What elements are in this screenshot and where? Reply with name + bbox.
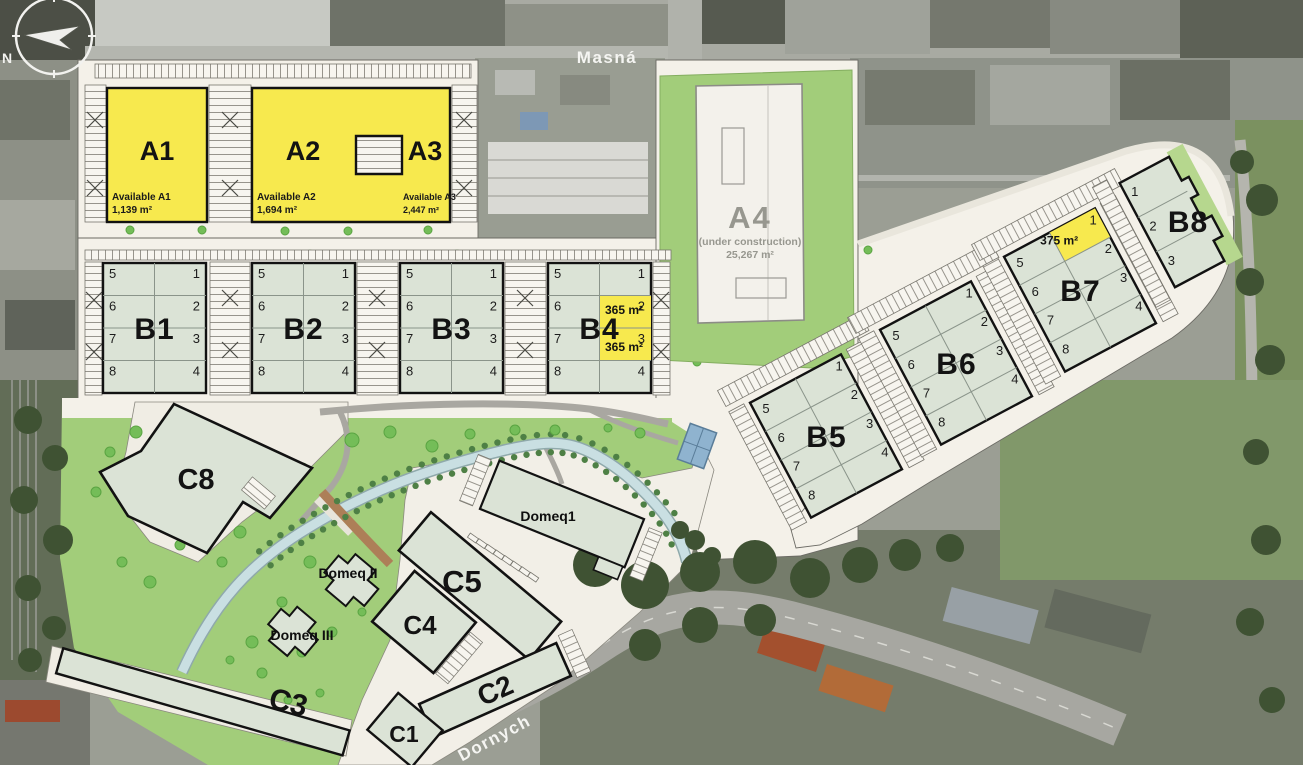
total-area: 25,267 m² (726, 249, 774, 261)
unit-number: 1 (1089, 212, 1096, 227)
unit-number: 8 (109, 364, 116, 379)
unit-number: 5 (406, 266, 413, 281)
building-b4[interactable]: 15263748B4365 m²365 m² (548, 263, 651, 393)
unit-number: 2 (490, 299, 497, 314)
unit-number: 8 (406, 364, 413, 379)
unit-number: 5 (554, 266, 561, 281)
building-label: B7 (1060, 275, 1100, 308)
unit-number: 4 (490, 364, 497, 379)
building-label: A2 (286, 136, 321, 166)
compass-north-label: N (2, 50, 12, 66)
unit-number: 6 (258, 299, 265, 314)
unit-number: 1 (193, 266, 200, 281)
unit-number: 3 (866, 416, 873, 431)
unit-number: 3 (342, 331, 349, 346)
building-label: A1 (140, 136, 175, 166)
unit-number: 4 (1011, 372, 1018, 387)
unit-number: 1 (638, 266, 645, 281)
unit-number: 5 (762, 401, 769, 416)
building-label: C5 (442, 564, 482, 599)
unit-number: 7 (554, 331, 561, 346)
unit-area-label: 365 m² (605, 340, 643, 354)
building-b2[interactable]: 15263748B2 (252, 263, 355, 393)
unit-number: 5 (892, 328, 899, 343)
unit-area-label: 375 m² (1040, 233, 1078, 247)
available-area: 1,139 m² (112, 205, 153, 216)
availability-label: Available A3 (403, 192, 456, 202)
building-a4[interactable]: A4 (under construction) 25,267 m² (660, 70, 854, 368)
unit-number: 4 (881, 445, 888, 460)
unit-number: 3 (1168, 253, 1175, 268)
building-label: B6 (936, 348, 976, 381)
unit-number: 4 (342, 364, 349, 379)
building-label: B8 (1168, 206, 1208, 239)
unit-number: 6 (109, 299, 116, 314)
building-label: C4 (403, 610, 437, 640)
unit-number: 7 (109, 331, 116, 346)
building-label: Domeq II (318, 565, 377, 581)
building-label: B5 (806, 421, 846, 454)
unit-number: 6 (908, 357, 915, 372)
unit-number: 7 (923, 386, 930, 401)
building-label: C1 (389, 721, 419, 747)
building-label: Domeq III (270, 627, 333, 643)
availability-label: Available A2 (257, 192, 316, 203)
unit-number: 2 (851, 387, 858, 402)
unit-number: 2 (1105, 241, 1112, 256)
available-area: 1,694 m² (257, 205, 298, 216)
building-label: B1 (134, 313, 174, 346)
unit-number: 1 (1131, 184, 1138, 199)
building-label: B3 (431, 313, 471, 346)
unit-number: 3 (193, 331, 200, 346)
unit-number: 8 (938, 414, 945, 429)
building-b3[interactable]: 15263748B3 (400, 263, 503, 393)
street-label-masna: Masná (577, 48, 637, 67)
unit-number: 2 (1149, 219, 1156, 234)
unit-number: 8 (1062, 341, 1069, 356)
unit-area-label: 365 m² (605, 303, 643, 317)
site-plan-map: A1 Available A1 1,139 m² A2 A3 Available… (0, 0, 1303, 765)
unit-number: 6 (554, 299, 561, 314)
unit-number: 7 (406, 331, 413, 346)
building-label: A4 (728, 200, 772, 235)
unit-number: 6 (778, 430, 785, 445)
building-label: C8 (177, 464, 214, 496)
unit-number: 7 (793, 459, 800, 474)
unit-number: 1 (965, 285, 972, 300)
unit-number: 8 (808, 487, 815, 502)
unit-number: 7 (1047, 313, 1054, 328)
unit-number: 6 (1032, 284, 1039, 299)
availability-label: Available A1 (112, 192, 171, 203)
unit-number: 4 (638, 364, 645, 379)
unit-number: 1 (342, 266, 349, 281)
unit-number: 3 (490, 331, 497, 346)
construction-status: (under construction) (699, 236, 802, 248)
building-label: B2 (283, 313, 323, 346)
unit-number: 1 (835, 358, 842, 373)
building-a1[interactable]: A1 Available A1 1,139 m² (107, 88, 207, 222)
unit-number: 5 (258, 266, 265, 281)
unit-number: 3 (996, 343, 1003, 358)
unit-number: 2 (193, 299, 200, 314)
unit-number: 8 (258, 364, 265, 379)
unit-number: 6 (406, 299, 413, 314)
unit-number: 7 (258, 331, 265, 346)
unit-number: 2 (342, 299, 349, 314)
unit-number: 5 (109, 266, 116, 281)
unit-number: 5 (1016, 255, 1023, 270)
unit-number: 8 (554, 364, 561, 379)
unit-number: 4 (1135, 299, 1142, 314)
building-b1[interactable]: 15263748B1 (103, 263, 206, 393)
building-a2-a3[interactable]: A2 A3 Available A2 1,694 m² Available A3… (252, 88, 456, 222)
unit-number: 1 (490, 266, 497, 281)
building-label: Domeq1 (520, 508, 575, 524)
building-label: A3 (408, 136, 443, 166)
unit-number: 2 (981, 314, 988, 329)
available-area: 2,447 m² (403, 205, 439, 215)
unit-number: 3 (1120, 270, 1127, 285)
unit-number: 4 (193, 364, 200, 379)
